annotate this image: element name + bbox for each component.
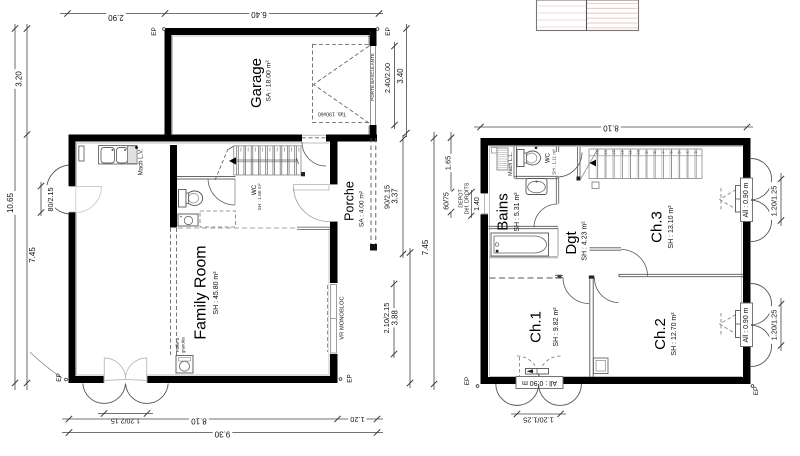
svg-text:WC: WC xyxy=(251,184,258,195)
svg-text:8: 8 xyxy=(653,151,657,153)
svg-text:3.20: 3.20 xyxy=(15,71,24,87)
svg-text:SA : 18.00 m²: SA : 18.00 m² xyxy=(266,60,273,102)
svg-text:60/75: 60/75 xyxy=(444,192,451,210)
svg-text:2.40/2.00: 2.40/2.00 xyxy=(383,63,392,93)
svg-text:Family Room: Family Room xyxy=(193,245,210,339)
svg-text:1.20/1.25: 1.20/1.25 xyxy=(523,416,554,425)
svg-text:SH : 5.31 m²: SH : 5.31 m² xyxy=(514,192,521,232)
svg-text:11: 11 xyxy=(629,150,633,154)
svg-text:Ch.2: Ch.2 xyxy=(652,318,669,350)
svg-text:EP: EP xyxy=(151,27,158,36)
svg-text:3.88: 3.88 xyxy=(390,310,399,325)
svg-text:6: 6 xyxy=(670,151,674,153)
svg-text:SH : 4.23 m²: SH : 4.23 m² xyxy=(582,221,589,261)
svg-text:12: 12 xyxy=(620,150,624,154)
svg-text:SH : 45.80 m²: SH : 45.80 m² xyxy=(213,271,220,315)
svg-text:8.10: 8.10 xyxy=(191,417,207,426)
svg-text:EP: EP xyxy=(753,387,760,396)
svg-text:Ch.1: Ch.1 xyxy=(528,311,545,343)
svg-text:7.45: 7.45 xyxy=(421,239,430,255)
svg-text:10.65: 10.65 xyxy=(6,192,15,213)
svg-text:Dgt: Dgt xyxy=(563,230,580,254)
svg-text:2.90: 2.90 xyxy=(108,13,124,22)
svg-text:10: 10 xyxy=(637,150,641,154)
svg-text:PORTE BASCULANTE: PORTE BASCULANTE xyxy=(370,53,375,101)
svg-text:EP: EP xyxy=(385,27,392,36)
svg-text:7.45: 7.45 xyxy=(28,247,37,263)
svg-text:Déf. DROITS: Déf. DROITS xyxy=(465,182,471,214)
svg-text:EP: EP xyxy=(56,373,63,382)
svg-text:EP: EP xyxy=(347,374,354,383)
svg-text:1.20/2.15: 1.20/2.15 xyxy=(111,416,140,423)
svg-text:14: 14 xyxy=(604,150,608,154)
svg-text:1.20/1.25: 1.20/1.25 xyxy=(770,310,779,341)
svg-text:8.10: 8.10 xyxy=(603,124,619,133)
svg-text:VR MONOBLOC: VR MONOBLOC xyxy=(339,296,345,339)
svg-text:1.20/1.25: 1.20/1.25 xyxy=(770,186,779,217)
svg-text:All : 0.90 m: All : 0.90 m xyxy=(522,379,557,386)
svg-text:13: 13 xyxy=(612,150,616,154)
svg-text:SH : 1.11 m²: SH : 1.11 m² xyxy=(552,149,557,175)
svg-text:80/2.15: 80/2.15 xyxy=(46,188,55,212)
svg-text:1.65: 1.65 xyxy=(444,156,453,170)
svg-text:1.40: 1.40 xyxy=(474,197,481,211)
svg-text:Poêle à: Poêle à xyxy=(175,337,180,352)
svg-text:SH : 1.66 m²: SH : 1.66 m² xyxy=(257,183,263,210)
svg-text:4: 4 xyxy=(686,151,690,153)
svg-text:Bains: Bains xyxy=(495,193,512,231)
svg-text:SH : 13.10 m²: SH : 13.10 m² xyxy=(668,205,675,249)
svg-text:Porche: Porche xyxy=(343,181,357,221)
svg-text:Dsj: Dsj xyxy=(367,31,372,37)
svg-text:1.20: 1.20 xyxy=(350,415,364,424)
svg-text:3.37: 3.37 xyxy=(390,188,399,203)
svg-text:7: 7 xyxy=(661,151,665,153)
svg-text:All : 0.90 m: All : 0.90 m xyxy=(743,307,750,342)
svg-text:SH : 12.70 m²: SH : 12.70 m² xyxy=(671,312,678,356)
svg-text:granulés: granulés xyxy=(180,337,185,353)
svg-text:6.40: 6.40 xyxy=(251,10,267,19)
svg-text:9: 9 xyxy=(645,151,649,153)
svg-text:Ch.3: Ch.3 xyxy=(649,211,666,243)
svg-text:Mach L.V.: Mach L.V. xyxy=(139,148,145,175)
svg-text:Mach L.L.: Mach L.L. xyxy=(508,152,514,176)
svg-text:5: 5 xyxy=(678,151,682,153)
svg-text:Garage: Garage xyxy=(248,58,265,108)
svg-text:All : 0.90 m: All : 0.90 m xyxy=(743,182,750,217)
svg-text:SH : 9.82 m²: SH : 9.82 m² xyxy=(553,307,560,347)
svg-text:EP: EP xyxy=(464,377,471,386)
svg-text:9.30: 9.30 xyxy=(214,430,230,439)
svg-text:Tab. 190x60: Tab. 190x60 xyxy=(318,111,346,117)
svg-text:3: 3 xyxy=(694,151,698,153)
svg-text:SA : 4.00 m²: SA : 4.00 m² xyxy=(358,190,365,227)
svg-text:3.40: 3.40 xyxy=(396,68,405,84)
